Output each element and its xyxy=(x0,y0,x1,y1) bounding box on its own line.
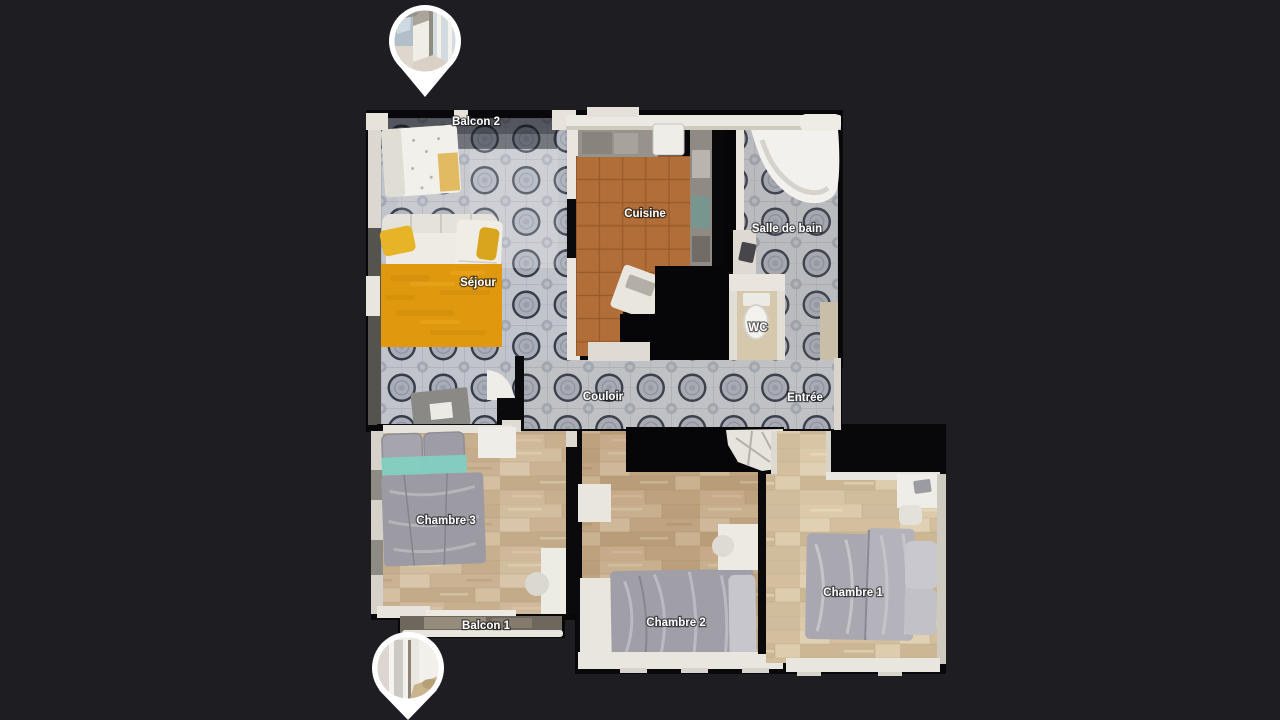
svg-text:Cuisine: Cuisine xyxy=(624,208,666,220)
svg-text:Salle de bain: Salle de bain xyxy=(752,223,822,235)
svg-text:WC: WC xyxy=(748,322,767,334)
svg-text:Balcon 2: Balcon 2 xyxy=(452,116,500,128)
svg-text:Séjour: Séjour xyxy=(460,277,496,289)
svg-text:Entrée: Entrée xyxy=(787,392,823,404)
svg-text:Couloir: Couloir xyxy=(583,391,624,403)
svg-text:Balcon 1: Balcon 1 xyxy=(462,620,511,632)
svg-text:Chambre 2: Chambre 2 xyxy=(646,617,705,629)
svg-text:Chambre 1: Chambre 1 xyxy=(823,587,883,599)
svg-text:Chambre 3: Chambre 3 xyxy=(416,515,475,527)
